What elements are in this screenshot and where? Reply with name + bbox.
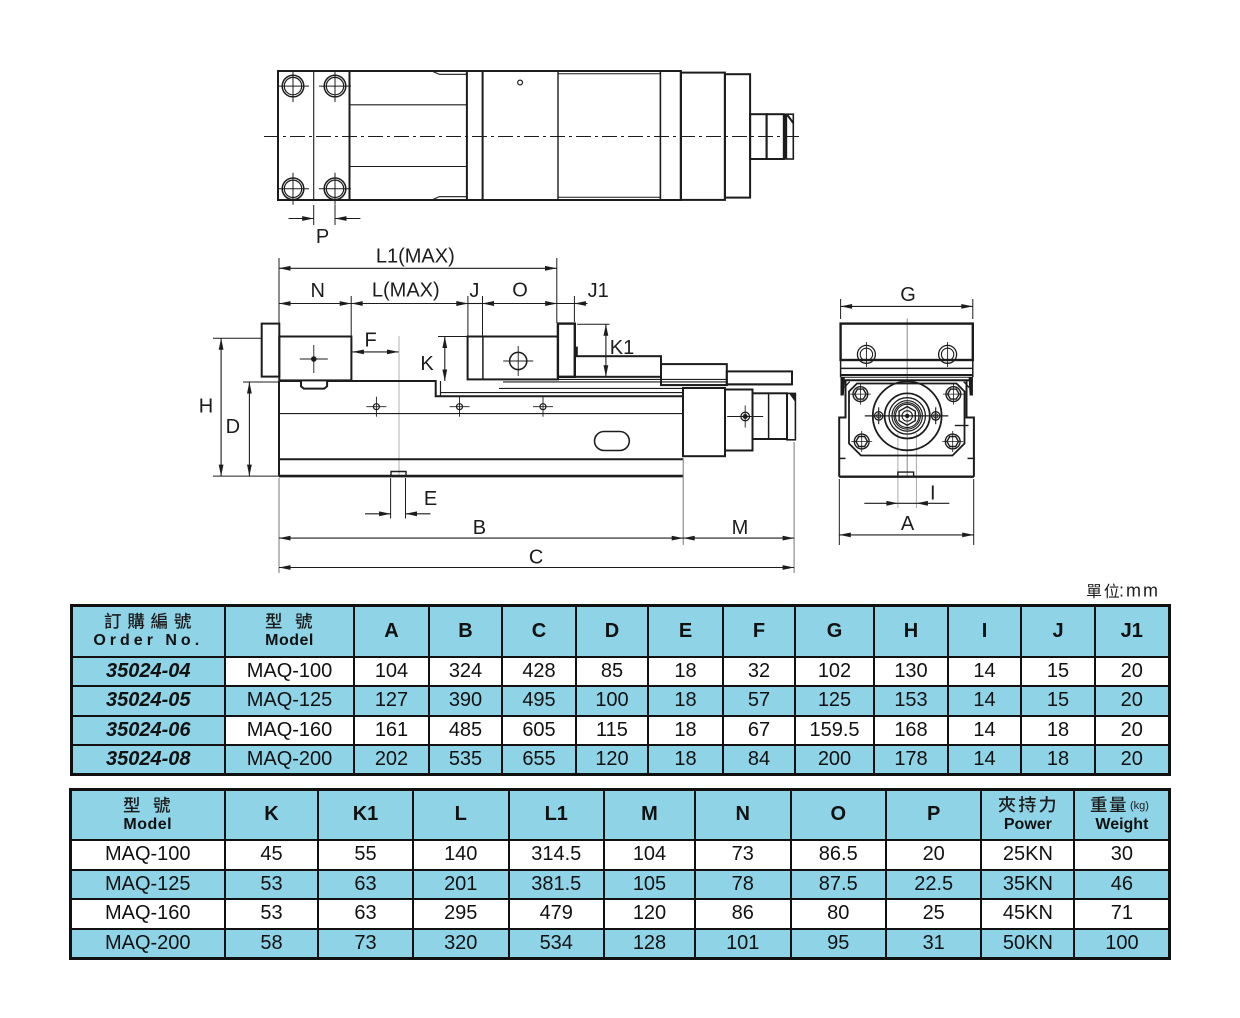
svg-text:K1: K1 bbox=[610, 337, 634, 359]
svg-text:L1(MAX): L1(MAX) bbox=[376, 246, 455, 268]
svg-text:M: M bbox=[732, 517, 749, 539]
svg-text:K: K bbox=[420, 353, 434, 375]
svg-text:L(MAX): L(MAX) bbox=[372, 280, 440, 302]
svg-text:O: O bbox=[512, 280, 528, 302]
svg-text:D: D bbox=[226, 416, 240, 438]
svg-text:H: H bbox=[199, 396, 213, 418]
svg-text:I: I bbox=[930, 483, 936, 505]
svg-text:(kg): (kg) bbox=[1130, 800, 1149, 812]
svg-text:J1: J1 bbox=[588, 280, 609, 302]
svg-text:A: A bbox=[901, 513, 915, 535]
svg-text:J: J bbox=[469, 280, 479, 302]
svg-text:G: G bbox=[900, 284, 916, 306]
svg-text:P: P bbox=[316, 226, 329, 248]
svg-text:B: B bbox=[473, 517, 486, 539]
svg-text:N: N bbox=[310, 280, 324, 302]
svg-text:F: F bbox=[364, 330, 376, 352]
svg-text:C: C bbox=[529, 547, 543, 569]
svg-text:E: E bbox=[424, 488, 437, 510]
svg-text::mm: :mm bbox=[1119, 581, 1160, 601]
